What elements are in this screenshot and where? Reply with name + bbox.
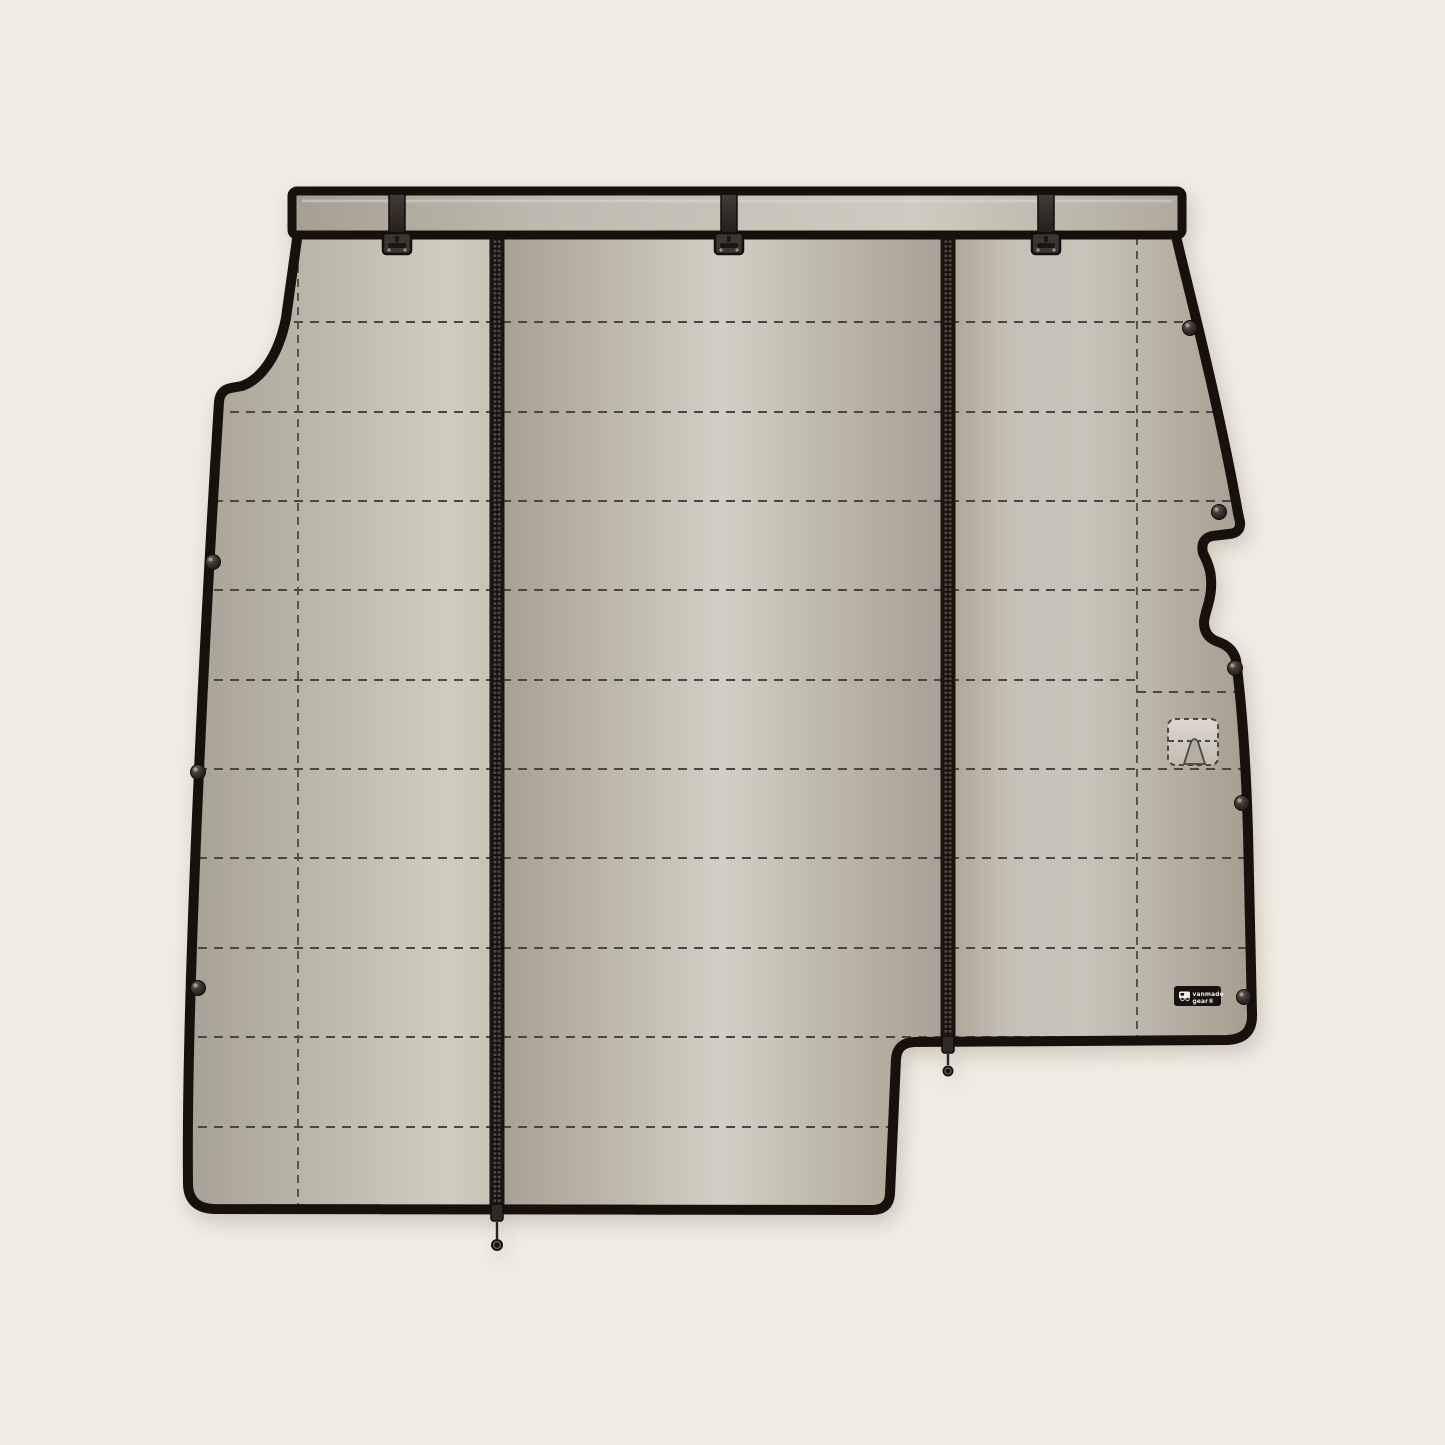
snap-fastener	[191, 765, 206, 780]
buckle-rivet	[403, 248, 406, 251]
snap-fastener	[191, 981, 206, 996]
zipper-slider-icon	[942, 1036, 954, 1053]
buckle-rivet	[719, 248, 722, 251]
snap-fastener	[1237, 990, 1252, 1005]
buckle-rivet	[1036, 248, 1039, 251]
buckle-pin	[727, 236, 731, 242]
divider-curtain-illustration: Van divider curtain product diagram	[0, 0, 1445, 1445]
buckle-pin	[1044, 236, 1048, 242]
brand-tag-line2: gear®	[1193, 999, 1215, 1005]
zipper-left	[490, 228, 505, 1214]
van-icon	[1179, 992, 1190, 1001]
snap-fastener	[1235, 796, 1250, 811]
buckle-pin	[395, 236, 399, 242]
buckle-slot	[1037, 243, 1055, 248]
buckle-rivet	[735, 248, 738, 251]
snap-fastener	[1183, 321, 1198, 336]
snap-fastener	[1228, 661, 1243, 676]
zipper-pull-ring-icon	[491, 1239, 503, 1251]
snap-fastener	[206, 555, 221, 570]
buckle-slot	[388, 243, 406, 248]
brand-tag: vanmade gear®	[1174, 986, 1224, 1006]
zipper-pull-ring-icon	[943, 1066, 954, 1077]
buckle-rivet	[387, 248, 390, 251]
brand-tag-line1: vanmade	[1193, 992, 1224, 998]
zipper-slider-icon	[491, 1204, 503, 1221]
buckle-slot	[720, 243, 738, 248]
panel-middle-shading	[497, 225, 948, 1220]
buckle-rivet	[1052, 248, 1055, 251]
snap-fastener	[1212, 505, 1227, 520]
handle-pocket	[1168, 719, 1218, 765]
illustration-canvas: Van divider curtain product diagram	[0, 0, 1445, 1445]
zipper-right	[941, 228, 956, 1044]
